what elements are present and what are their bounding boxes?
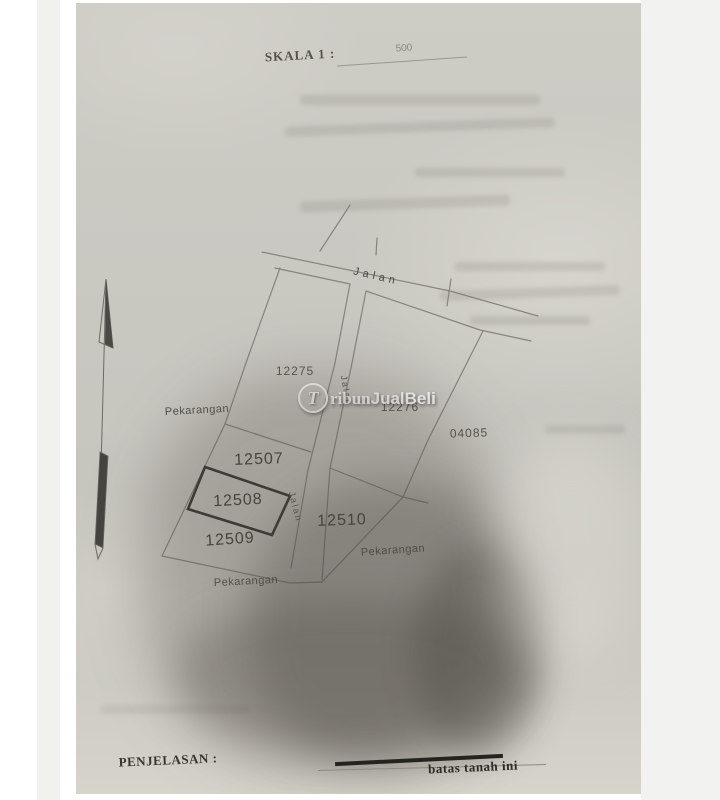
boundary-tick — [447, 279, 451, 306]
map-drawing — [76, 3, 641, 794]
road-line — [275, 268, 350, 284]
plot-boundary — [403, 331, 483, 497]
boundary-tick — [320, 205, 350, 251]
plot-label-12275: 12275 — [276, 365, 314, 377]
boundary-tick — [376, 238, 377, 255]
legend-meaning: batas tanah ini — [428, 759, 518, 776]
plot-label-12510: 12510 — [317, 512, 367, 530]
road-line — [322, 291, 366, 580]
document-photo: SKALA 1 : 500 — [76, 3, 641, 794]
plot-label-12276: 12276 — [381, 401, 419, 413]
plot-boundary — [225, 424, 311, 452]
plot-boundary — [322, 497, 403, 582]
plot-label-04085: 04085 — [450, 426, 489, 439]
plot-label-12508: 12508 — [213, 492, 263, 511]
plot-label-12509: 12509 — [205, 530, 255, 549]
plot-label-12507: 12507 — [234, 451, 284, 469]
road-line — [262, 252, 538, 316]
north-arrow-icon — [95, 279, 113, 559]
left-gutter-strip — [37, 0, 60, 800]
right-gutter-strip — [641, 0, 720, 800]
